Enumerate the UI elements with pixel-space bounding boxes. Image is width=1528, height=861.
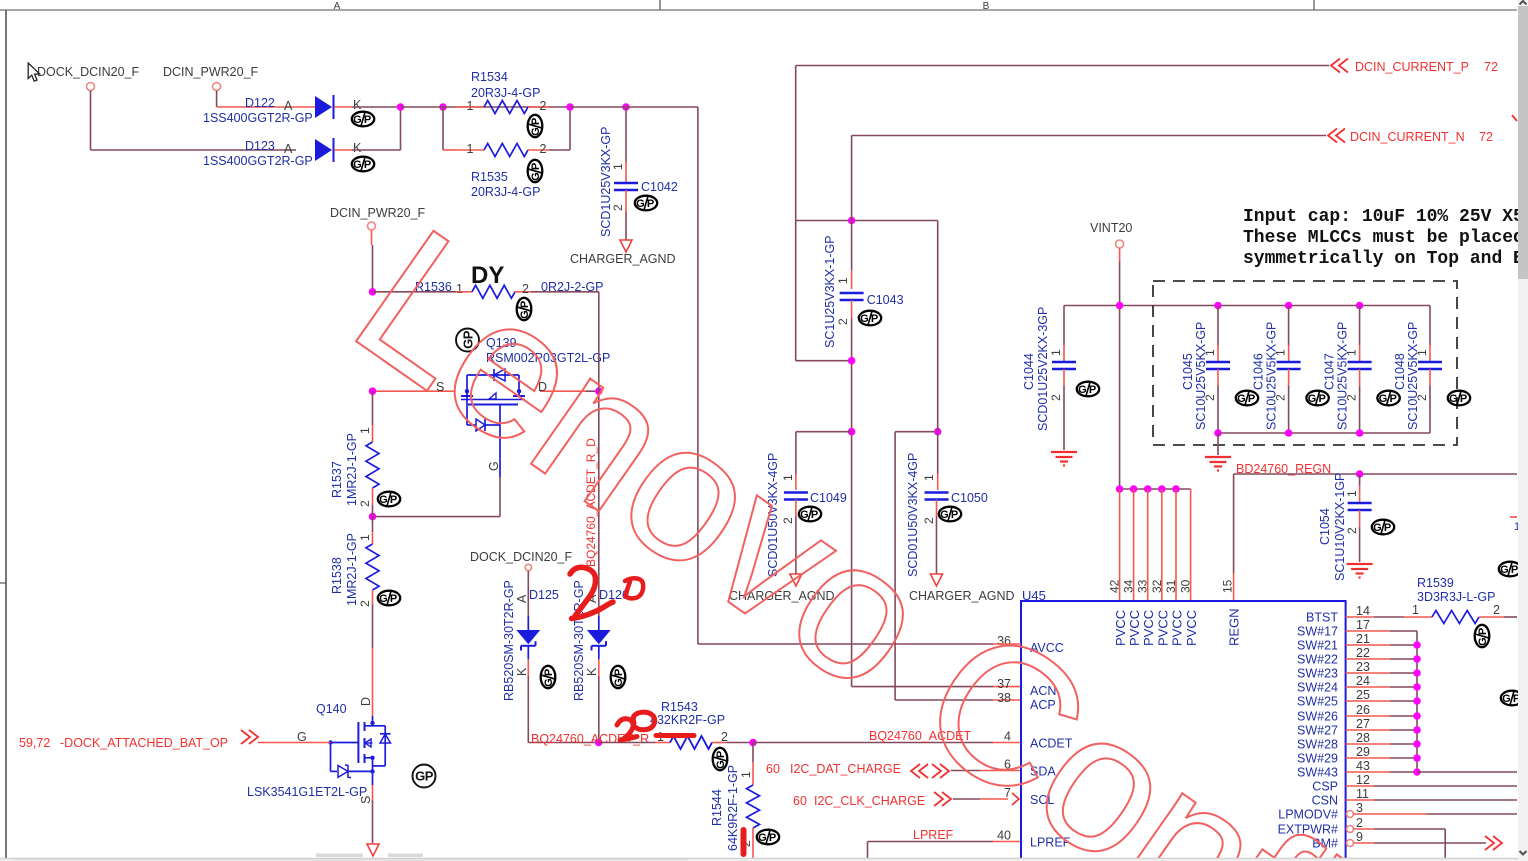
svg-text:RB520SM-30T2R-GP: RB520SM-30T2R-GP	[572, 580, 586, 701]
svg-text:P: P	[613, 669, 625, 676]
svg-text:I2C_DAT_CHARGE: I2C_DAT_CHARGE	[790, 762, 901, 776]
svg-text:SW#22: SW#22	[1297, 653, 1338, 667]
svg-text:59,72: 59,72	[19, 736, 50, 750]
svg-text:2: 2	[721, 730, 728, 744]
svg-text:G: G	[1449, 393, 1458, 405]
svg-text:1: 1	[1049, 349, 1063, 356]
svg-text:SW#25: SW#25	[1297, 695, 1338, 709]
svg-text:LSK3541G1ET2L-GP: LSK3541G1ET2L-GP	[247, 785, 367, 799]
svg-text:C1054: C1054	[1318, 508, 1332, 545]
svg-text:2: 2	[1493, 603, 1500, 617]
svg-text:G: G	[1308, 393, 1317, 405]
svg-text:PVCC: PVCC	[1127, 610, 1142, 646]
svg-text:SW#27: SW#27	[1297, 724, 1338, 738]
svg-text:SW#29: SW#29	[1297, 752, 1338, 766]
svg-text:DCIN_CURRENT_P: DCIN_CURRENT_P	[1355, 60, 1469, 74]
svg-text:17: 17	[1356, 618, 1370, 632]
svg-text:P: P	[1477, 628, 1489, 635]
svg-text:P: P	[1384, 522, 1391, 534]
svg-text:2: 2	[540, 99, 547, 113]
svg-text:G: G	[636, 198, 645, 210]
svg-text:SC10U25V5KX-GP: SC10U25V5KX-GP	[1406, 322, 1420, 430]
svg-text:P: P	[1390, 393, 1397, 405]
svg-text:Q140: Q140	[316, 702, 347, 716]
svg-text:33: 33	[1136, 579, 1150, 593]
svg-text:2: 2	[358, 600, 372, 607]
svg-text:1MR2J-1-GP: 1MR2J-1-GP	[345, 533, 359, 606]
svg-text:P: P	[364, 159, 371, 171]
svg-text:25: 25	[1356, 688, 1370, 702]
svg-text:K: K	[515, 667, 529, 676]
svg-text:SW#21: SW#21	[1297, 639, 1338, 653]
svg-text:1SS400GGT2R-GP: 1SS400GGT2R-GP	[203, 154, 313, 168]
svg-text:3: 3	[1356, 801, 1363, 815]
svg-text:G: G	[379, 593, 388, 605]
svg-text:SCD1U25V3KX-GP: SCD1U25V3KX-GP	[599, 127, 613, 237]
svg-text:SW#28: SW#28	[1297, 738, 1338, 752]
svg-text:1: 1	[611, 163, 625, 170]
svg-text:P: P	[543, 669, 555, 676]
svg-text:Input cap: 10uF 10% 25V X5: Input cap: 10uF 10% 25V X5	[1243, 207, 1524, 227]
svg-text:DOCK_DCIN20_F: DOCK_DCIN20_F	[37, 65, 139, 79]
svg-text:LPREF: LPREF	[913, 828, 954, 842]
svg-text:RB520SM-30T2R-GP: RB520SM-30T2R-GP	[502, 580, 516, 701]
svg-text:SC10U25V5KX-GP: SC10U25V5KX-GP	[1265, 322, 1279, 430]
svg-text:1: 1	[1412, 603, 1419, 617]
svg-text:P: P	[530, 163, 542, 170]
svg-text:SW#26: SW#26	[1297, 710, 1338, 724]
svg-text:CHARGER_AGND: CHARGER_AGND	[570, 252, 676, 266]
svg-text:D125: D125	[529, 588, 559, 602]
svg-text:PVCC: PVCC	[1184, 610, 1199, 646]
svg-text:These MLCCs must be placed: These MLCCs must be placed	[1243, 228, 1524, 248]
svg-text:2: 2	[1049, 394, 1063, 401]
svg-text:G: G	[940, 509, 949, 521]
svg-text:R1543: R1543	[661, 700, 698, 714]
svg-text:2: 2	[358, 500, 372, 507]
svg-text:2: 2	[1345, 527, 1359, 534]
svg-text:G: G	[1237, 393, 1246, 405]
svg-text:P: P	[364, 114, 371, 126]
svg-text:C1048: C1048	[1393, 353, 1407, 390]
svg-text:G: G	[379, 494, 388, 506]
svg-text:G: G	[1379, 393, 1388, 405]
svg-text:15: 15	[1221, 579, 1235, 593]
svg-text:1: 1	[836, 277, 850, 284]
svg-text:26: 26	[1356, 703, 1370, 717]
svg-text:G: G	[715, 760, 727, 769]
svg-text:D123: D123	[245, 139, 275, 153]
svg-text:24: 24	[1356, 674, 1370, 688]
svg-text:symmetrically on Top and Bo: symmetrically on Top and Bo	[1243, 249, 1528, 269]
svg-text:C1045: C1045	[1181, 353, 1195, 390]
svg-text:SC1U25V3KX-1-GP: SC1U25V3KX-1-GP	[823, 235, 837, 348]
svg-text:K: K	[585, 667, 599, 676]
svg-text:R1537: R1537	[330, 461, 344, 498]
svg-text:2: 2	[540, 142, 547, 156]
svg-text:-DOCK_ATTACHED_BAT_OP: -DOCK_ATTACHED_BAT_OP	[60, 736, 228, 750]
svg-text:G: G	[1500, 564, 1509, 576]
svg-text:G: G	[860, 313, 869, 325]
svg-text:C1042: C1042	[641, 180, 678, 194]
svg-text:SW#23: SW#23	[1297, 667, 1338, 681]
svg-text:SC10U25V5KX-GP: SC10U25V5KX-GP	[1194, 322, 1208, 430]
svg-text:R1544: R1544	[710, 789, 724, 826]
svg-text:A: A	[515, 594, 529, 603]
svg-text:D122: D122	[245, 96, 275, 110]
svg-text:72: 72	[1484, 60, 1498, 74]
svg-text:27: 27	[1356, 717, 1370, 731]
svg-text:1: 1	[358, 427, 372, 434]
svg-text:P: P	[390, 494, 397, 506]
svg-text:G: G	[530, 127, 542, 136]
svg-text:P: P	[530, 118, 542, 125]
svg-text:28: 28	[1356, 731, 1370, 745]
svg-text:C1043: C1043	[867, 293, 904, 307]
svg-text:30: 30	[1179, 579, 1193, 593]
svg-text:G: G	[543, 678, 555, 687]
svg-text:BTST: BTST	[1306, 611, 1338, 625]
svg-text:R1538: R1538	[330, 557, 344, 594]
svg-text:R1539: R1539	[1417, 576, 1454, 590]
svg-text:PVCC: PVCC	[1155, 610, 1170, 646]
svg-text:12: 12	[1356, 773, 1370, 787]
svg-text:32: 32	[1150, 579, 1164, 593]
svg-text:P: P	[871, 313, 878, 325]
svg-text:C1046: C1046	[1252, 353, 1266, 390]
svg-text:R1535: R1535	[471, 170, 508, 184]
svg-text:SW#17: SW#17	[1297, 625, 1338, 639]
svg-text:CSP: CSP	[1312, 780, 1338, 794]
svg-text:1: 1	[739, 771, 753, 778]
svg-text:432KR2F-GP: 432KR2F-GP	[650, 713, 725, 727]
svg-text:DOCK_DCIN20_F: DOCK_DCIN20_F	[470, 550, 572, 564]
svg-text:B: B	[983, 1, 990, 12]
svg-text:2: 2	[836, 318, 850, 325]
svg-text:C1050: C1050	[951, 491, 988, 505]
svg-text:G: G	[613, 678, 625, 687]
svg-text:GP: GP	[415, 769, 434, 784]
svg-text:P: P	[1511, 564, 1518, 576]
svg-text:G: G	[1373, 522, 1382, 534]
svg-text:60: 60	[793, 794, 807, 808]
svg-text:P: P	[1319, 393, 1326, 405]
svg-text:P: P	[1089, 384, 1096, 396]
svg-text:G: G	[758, 832, 767, 844]
svg-text:P: P	[1460, 393, 1467, 405]
svg-text:K: K	[353, 98, 362, 112]
svg-text:11: 11	[1356, 787, 1369, 801]
svg-text:43: 43	[1356, 759, 1370, 773]
svg-text:1: 1	[467, 99, 474, 113]
svg-text:P: P	[390, 593, 397, 605]
svg-text:S: S	[359, 796, 373, 804]
svg-text:DCIN_CURRENT_N: DCIN_CURRENT_N	[1350, 130, 1465, 144]
svg-text:SW#24: SW#24	[1297, 681, 1338, 695]
svg-text:REGN: REGN	[1227, 608, 1242, 646]
svg-text:VINT20: VINT20	[1090, 221, 1132, 235]
svg-text:C1047: C1047	[1323, 353, 1337, 390]
svg-text:K: K	[353, 141, 362, 155]
svg-text:C1044: C1044	[1022, 353, 1036, 390]
svg-text:31: 31	[1164, 579, 1178, 593]
svg-text:P: P	[769, 832, 776, 844]
svg-text:G: G	[1477, 637, 1489, 646]
svg-text:1: 1	[467, 142, 474, 156]
svg-text:DCIN_PWR20_F: DCIN_PWR20_F	[163, 65, 259, 79]
svg-text:1: 1	[1345, 490, 1359, 497]
svg-text:G: G	[353, 114, 362, 126]
svg-text:SCD01U25V2KX-3GP: SCD01U25V2KX-3GP	[1036, 307, 1050, 431]
svg-text:G: G	[530, 172, 542, 181]
svg-text:60: 60	[766, 762, 780, 776]
svg-text:42: 42	[1108, 579, 1122, 593]
svg-text:2: 2	[611, 204, 625, 211]
svg-text:DCIN_PWR20_F: DCIN_PWR20_F	[330, 206, 426, 220]
svg-text:1SS400GGT2R-GP: 1SS400GGT2R-GP	[203, 111, 313, 125]
svg-text:20R3J-4-GP: 20R3J-4-GP	[471, 86, 540, 100]
svg-text:72: 72	[1479, 130, 1493, 144]
svg-text:D: D	[359, 697, 373, 706]
svg-text:P: P	[647, 198, 654, 210]
svg-text:PVCC: PVCC	[1113, 610, 1128, 646]
svg-text:3D3R3J-L-GP: 3D3R3J-L-GP	[1417, 590, 1496, 604]
svg-text:1MR2J-1-GP: 1MR2J-1-GP	[345, 433, 359, 506]
svg-text:P: P	[1248, 393, 1255, 405]
svg-text:22: 22	[1356, 646, 1370, 660]
svg-text:G: G	[353, 159, 362, 171]
svg-text:29: 29	[1356, 745, 1370, 759]
svg-text:P: P	[715, 751, 727, 758]
svg-text:I2C_CLK_CHARGE: I2C_CLK_CHARGE	[814, 794, 925, 808]
svg-text:64K9R2F-1-GP: 64K9R2F-1-GP	[726, 765, 740, 851]
svg-text:20R3J-4-GP: 20R3J-4-GP	[471, 185, 540, 199]
svg-text:23: 23	[1356, 660, 1370, 674]
svg-text:SW#43: SW#43	[1297, 766, 1338, 780]
svg-text:21: 21	[1356, 632, 1370, 646]
svg-text:1: 1	[922, 474, 936, 481]
svg-text:R1534: R1534	[471, 70, 508, 84]
svg-text:SC10U25V5KX-GP: SC10U25V5KX-GP	[1336, 322, 1350, 430]
svg-text:1: 1	[358, 534, 372, 541]
svg-text:34: 34	[1122, 579, 1136, 593]
svg-text:14: 14	[1356, 604, 1370, 618]
svg-text:G: G	[1078, 384, 1087, 396]
svg-text:PVCC: PVCC	[1141, 610, 1156, 646]
svg-text:SC1U10V2KX-1GP: SC1U10V2KX-1GP	[1333, 473, 1347, 581]
svg-text:A: A	[334, 1, 341, 12]
svg-text:PVCC: PVCC	[1170, 610, 1185, 646]
svg-text:P: P	[951, 509, 958, 521]
svg-text:G: G	[1502, 693, 1511, 705]
